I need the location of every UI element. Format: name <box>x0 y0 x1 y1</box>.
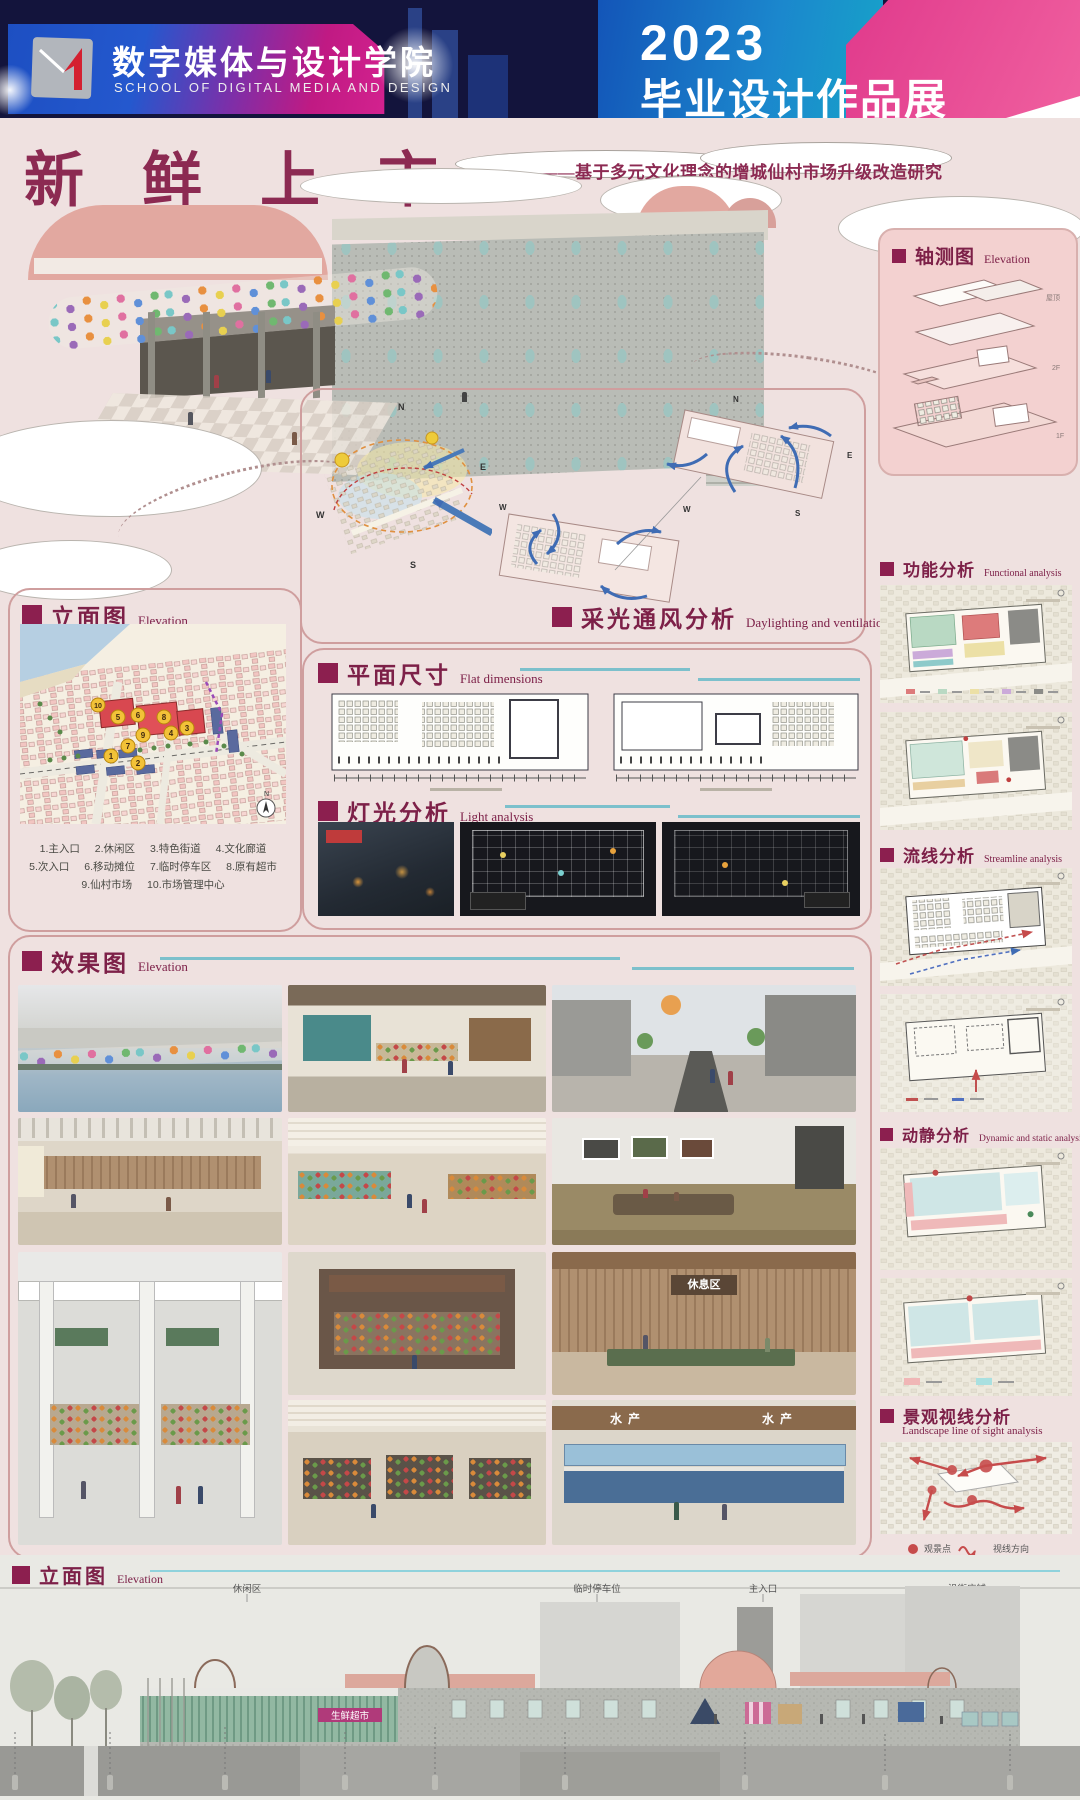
stall-counter <box>161 1404 251 1445</box>
deco-tower <box>468 55 508 118</box>
counter <box>298 1171 391 1199</box>
render-veg-stall <box>288 1252 546 1395</box>
frame <box>631 1136 668 1159</box>
person-figure <box>728 1071 733 1085</box>
person-figure <box>407 1194 412 1208</box>
section-marker <box>318 663 338 683</box>
person-figure <box>674 1502 679 1520</box>
sun <box>661 995 681 1015</box>
sightline-map <box>880 1442 1072 1534</box>
green-sign <box>55 1328 108 1346</box>
elevation-label: 休闲区 <box>233 1583 262 1595</box>
section-functional-header: 功能分析 Functional analysis <box>880 556 1062 581</box>
school-name-cn: 数字媒体与设计学院 <box>112 36 436 84</box>
site-number: 4 <box>169 729 174 738</box>
column <box>139 1281 154 1517</box>
sight-arrow-icon <box>957 1543 987 1555</box>
night-render <box>318 822 454 916</box>
light-dot <box>610 848 616 854</box>
site-number: 10 <box>94 703 102 710</box>
section-title-cn: 流线分析 <box>903 842 975 867</box>
site-legend-line: 1.主入口 2.休闲区 3.特色街道 4.文化廊道 <box>22 840 284 858</box>
render-gallery <box>552 1118 856 1245</box>
masthead: 数字媒体与设计学院 SCHOOL OF DIGITAL MEDIA AND DE… <box>0 0 1080 118</box>
school-name-en: SCHOOL OF DIGITAL MEDIA AND DESIGN <box>114 80 452 95</box>
site-legend: 1.主入口 2.休闲区 3.特色街道 4.文化廊道 5.次入口 6.移动摊位 7… <box>22 840 284 894</box>
site-number: 6 <box>136 711 141 720</box>
compass-s: S <box>410 560 416 570</box>
person-figure <box>81 1481 86 1499</box>
counter <box>448 1174 536 1199</box>
section-title-en: Elevation <box>138 959 188 975</box>
person-figure <box>643 1335 648 1349</box>
section-title-cn: 轴测图 <box>915 242 975 269</box>
render-market-interior <box>288 985 546 1112</box>
road <box>674 1051 729 1112</box>
person-figure <box>402 1059 407 1073</box>
section-marker <box>892 249 906 263</box>
section-marker <box>880 1128 893 1141</box>
section-title-en: Functional analysis <box>984 568 1062 579</box>
wind-diagram: N E S W W S <box>495 392 860 622</box>
plan-legend-box <box>470 892 526 910</box>
stall-counter <box>50 1404 140 1445</box>
section-marker <box>552 607 572 627</box>
render-aisle <box>288 1118 546 1245</box>
elevation-drawing: 休闲区 临时停车位 主入口 沿街店铺 生鲜超市 <box>0 1582 1080 1800</box>
section-axon-header: 轴测图 Elevation <box>892 242 1030 269</box>
section-flat-header: 平面尺寸 Flat dimensions <box>318 656 543 690</box>
floor-plan-drawing <box>612 692 860 784</box>
compass-e: E <box>480 462 486 472</box>
plan-legend-box <box>804 892 850 908</box>
light-plan-dark <box>460 822 656 916</box>
direction-label: 视线方向 <box>993 1542 1029 1555</box>
light-dot <box>558 870 564 876</box>
column <box>148 312 155 398</box>
beam <box>552 1252 856 1269</box>
section-title-en: Dynamic and static analysis <box>979 1134 1080 1144</box>
plan-caption-bar <box>430 788 502 791</box>
exhibit-year: 2023 <box>640 14 767 72</box>
axon-panel: 轴测图 Elevation 屋顶 2F 1F <box>878 228 1078 476</box>
column <box>313 312 320 398</box>
wood-wall <box>39 1156 261 1189</box>
axon-exploded-drawing: 屋顶 2F 1F <box>886 270 1070 468</box>
render-produce-wide <box>288 1400 546 1545</box>
section-title-en: Flat dimensions <box>460 671 543 687</box>
site-legend-line: 5.次入口 6.移动摊位 7.临时停车区 8.原有超市 <box>22 858 284 876</box>
section-marker <box>22 605 42 625</box>
compass-n: N <box>398 402 405 412</box>
frame <box>582 1138 619 1160</box>
section-landscape-subtitle: Landscape line of sight analysis <box>902 1425 1043 1437</box>
section-daylight-header: 采光通风分析 Daylighting and ventilation analy… <box>552 600 934 634</box>
light-plan-dark <box>662 822 860 916</box>
site-number: 3 <box>185 724 190 733</box>
window-light <box>18 1146 44 1197</box>
plan-grid <box>674 830 848 898</box>
site-number: 7 <box>126 742 131 751</box>
doorway <box>795 1126 844 1190</box>
site-number: 1 <box>109 752 114 761</box>
night-sign <box>326 830 362 843</box>
section-title-en: Elevation <box>984 252 1030 267</box>
person-figure <box>198 1486 203 1504</box>
site-legend-line: 9.仙村市场 10.市场管理中心 <box>22 876 284 894</box>
section-marker <box>880 848 894 862</box>
section-dynamic-header: 动静分析 Dynamic and static analysis <box>880 1122 1080 1146</box>
rest-sign: 休息区 <box>671 1275 738 1295</box>
building <box>552 1000 631 1076</box>
teal-rule <box>678 815 860 818</box>
column <box>39 1281 54 1517</box>
teal-rule <box>632 967 854 970</box>
streamline-plan-2 <box>880 994 1072 1112</box>
viewpoint-label: 观景点 <box>924 1542 951 1555</box>
site-number: 8 <box>162 713 167 722</box>
green-sign <box>166 1328 219 1346</box>
site-number: 5 <box>116 713 121 722</box>
person-figure <box>371 1504 376 1518</box>
elevation-band: 立面图 Elevation 休闲区 临时停车位 主入口 沿街店铺 <box>0 1555 1080 1800</box>
person-figure <box>176 1486 181 1504</box>
logo-mark-icon <box>30 36 96 102</box>
section-title-cn: 平面尺寸 <box>347 656 451 690</box>
person-figure <box>722 1504 727 1520</box>
render-street <box>552 985 856 1112</box>
supermarket-sign: 生鲜超市 <box>331 1710 370 1722</box>
teal-rule <box>505 805 670 808</box>
person-figure <box>412 1355 417 1369</box>
stall-sign <box>329 1275 504 1292</box>
render-hall <box>18 1118 282 1245</box>
stall <box>469 1018 531 1061</box>
column <box>258 312 265 398</box>
person-figure <box>266 370 271 383</box>
teal-rule <box>698 678 860 681</box>
axon-level-label: 屋顶 <box>1046 294 1060 302</box>
site-plan-map: 1 2 3 4 5 6 7 8 9 10 N <box>20 624 286 824</box>
teal-rule <box>520 668 690 671</box>
fruit-stand <box>303 1458 370 1499</box>
light-dot <box>782 880 788 886</box>
functional-plan-2 <box>880 712 1072 830</box>
bench <box>607 1349 795 1366</box>
ceiling-slats <box>18 1118 282 1138</box>
person-figure <box>422 1199 427 1213</box>
section-marker <box>318 801 338 821</box>
person-figure <box>643 1189 648 1198</box>
compass-e: E <box>847 451 853 460</box>
person-figure <box>214 375 219 388</box>
viewpoint-dot-icon <box>908 1544 918 1554</box>
axon-level-label: 2F <box>1052 365 1060 372</box>
arch-fascia <box>34 258 322 274</box>
canopy-white <box>288 1118 546 1146</box>
person-figure <box>765 1338 770 1352</box>
fish-tanks <box>564 1444 846 1466</box>
floor-plan-drawing <box>330 692 590 784</box>
render-riverside <box>18 985 282 1112</box>
plan-caption-bar <box>700 788 772 791</box>
dynamic-plan-1 <box>880 1148 1072 1270</box>
person-figure <box>448 1061 453 1075</box>
person-figure <box>674 1192 679 1201</box>
section-marker <box>880 1409 894 1423</box>
section-title-cn: 功能分析 <box>903 556 975 581</box>
exhibit-name: 毕业设计作品展 <box>640 66 948 118</box>
teal-rule <box>150 1570 1060 1572</box>
shore <box>18 1064 282 1070</box>
person-figure <box>166 1197 171 1211</box>
person-figure <box>292 432 297 445</box>
light-dot <box>500 852 506 858</box>
section-renders-header: 效果图 Elevation <box>22 944 188 978</box>
site-number: 9 <box>141 731 146 740</box>
compass-w: W <box>683 505 691 514</box>
seafood-sign-band: 水产 水产 <box>552 1406 856 1431</box>
section-title-cn: 效果图 <box>51 944 129 978</box>
site-number: 2 <box>136 759 141 768</box>
fruit-stand <box>386 1455 453 1499</box>
section-marker <box>880 562 894 576</box>
produce-shelves <box>334 1312 499 1355</box>
tree <box>637 1033 653 1049</box>
canopy-white <box>288 1400 546 1426</box>
seafood-sign: 水产 <box>762 1410 798 1427</box>
axon-level-label: 1F <box>1056 433 1064 440</box>
section-title-cn: 采光通风分析 <box>581 600 737 634</box>
landscape-legend: 观景点 视线方向 <box>908 1542 1029 1555</box>
render-rest-area: 休息区 <box>552 1252 856 1395</box>
building <box>765 995 856 1076</box>
blue-counter <box>564 1467 844 1503</box>
elevation-label: 临时停车位 <box>573 1583 621 1595</box>
counter <box>376 1043 459 1061</box>
teal-rule <box>160 957 620 960</box>
column <box>203 312 210 398</box>
section-marker <box>22 951 42 971</box>
column <box>240 1281 255 1517</box>
seafood-sign: 水产 <box>610 1410 646 1427</box>
compass-n: N <box>733 395 739 404</box>
render-seafood: 水产 水产 <box>552 1400 856 1545</box>
compass-w: W <box>316 510 325 520</box>
section-title-en: Streamline analysis <box>984 854 1062 865</box>
cloud <box>300 168 582 204</box>
poster: { "header": { "school_cn": "数字媒体与设计学院", … <box>0 0 1080 1800</box>
person-figure <box>710 1069 715 1083</box>
frame <box>680 1138 714 1159</box>
tree <box>747 1028 765 1046</box>
compass-s: S <box>795 509 801 518</box>
compass-w: W <box>499 503 507 512</box>
functional-plan-1 <box>880 585 1072 703</box>
dynamic-plan-2 <box>880 1278 1072 1396</box>
sun-path-diagram: N E S W <box>312 398 492 573</box>
plan-grid <box>472 830 645 898</box>
section-title-cn: 动静分析 <box>902 1122 970 1146</box>
stall <box>303 1015 370 1061</box>
person-figure <box>71 1194 76 1208</box>
section-streamline-header: 流线分析 Streamline analysis <box>880 842 1062 867</box>
elevation-label: 主入口 <box>749 1583 778 1595</box>
light-dot <box>722 862 728 868</box>
fruit-stand <box>469 1458 531 1499</box>
section-marker <box>12 1566 30 1584</box>
render-meat-pavilion <box>18 1252 282 1545</box>
person-figure <box>188 412 193 425</box>
compass-n: N <box>264 791 269 798</box>
streamline-plan-1 <box>880 868 1072 986</box>
